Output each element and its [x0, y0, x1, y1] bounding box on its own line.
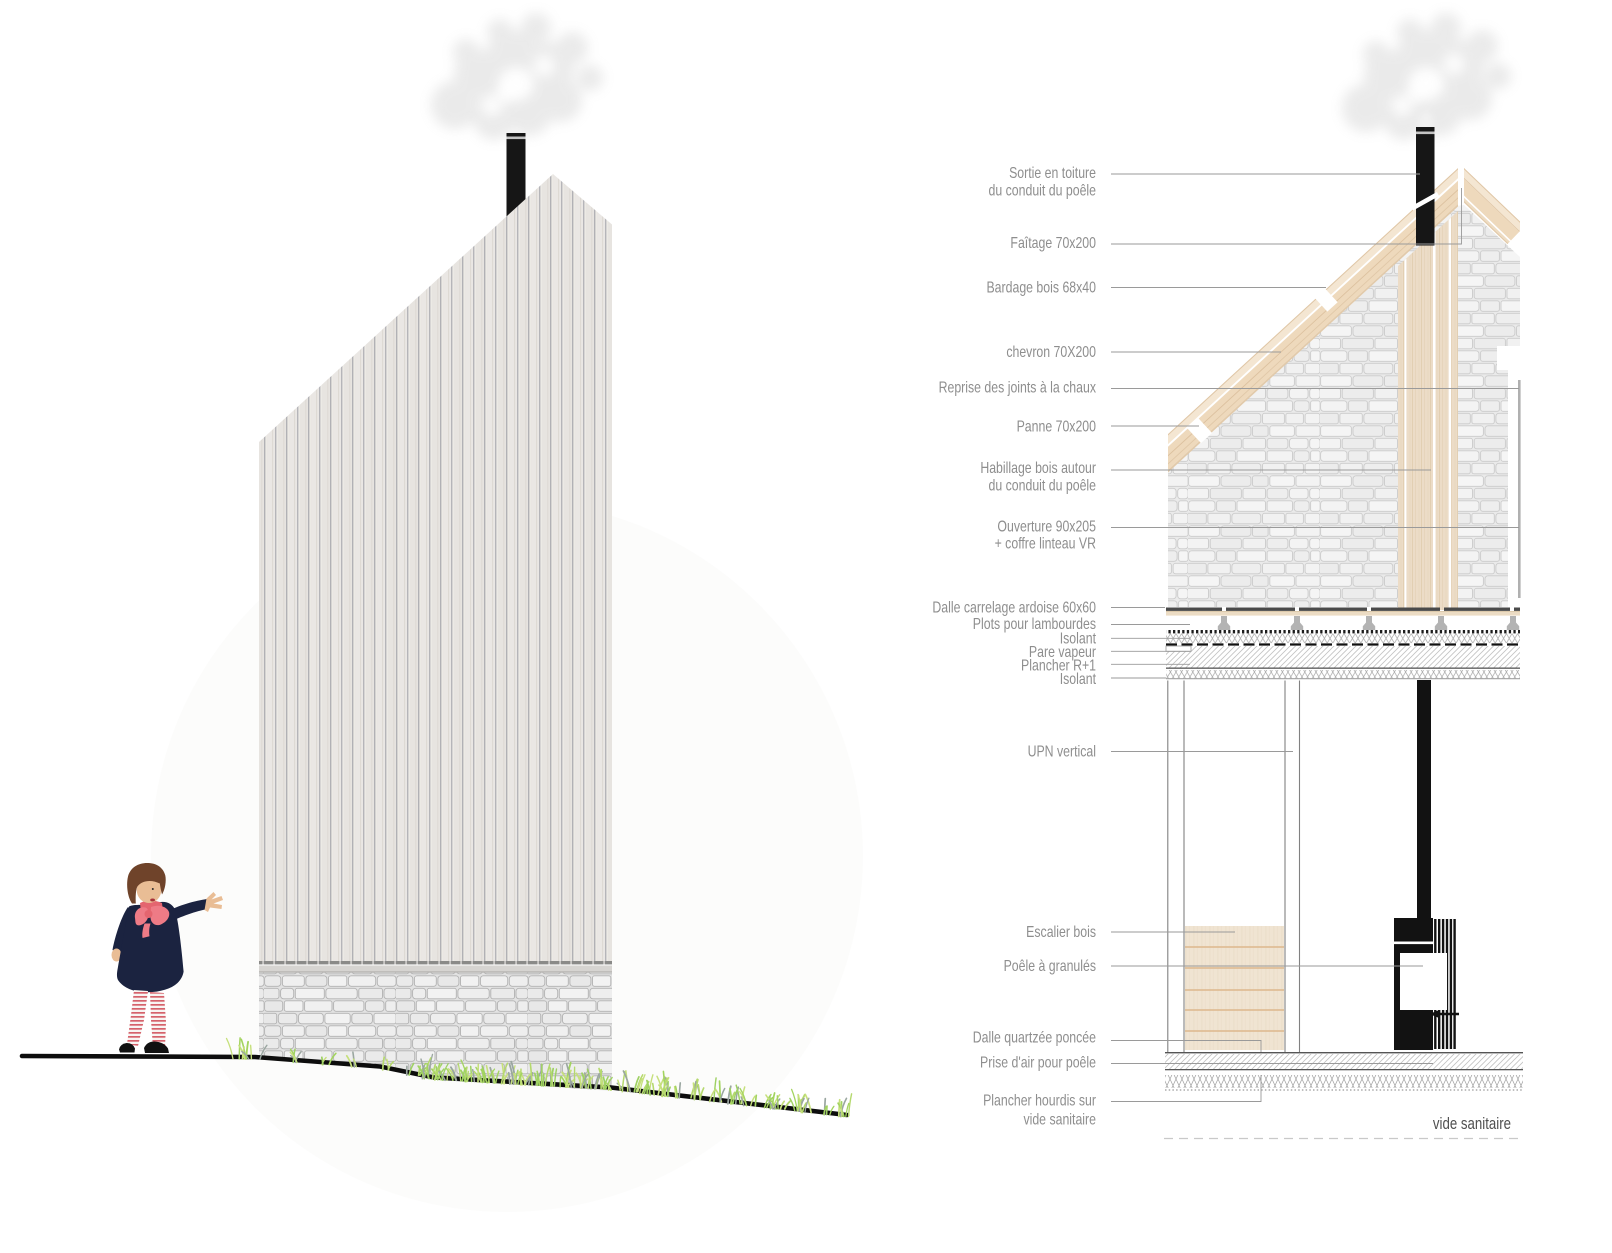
svg-text:du conduit du poêle: du conduit du poêle	[989, 477, 1097, 495]
svg-text:Reprise des joints à la chaux: Reprise des joints à la chaux	[939, 379, 1096, 397]
svg-text:Panne 70x200: Panne 70x200	[1017, 418, 1097, 436]
svg-text:Habillage bois autour: Habillage bois autour	[980, 460, 1096, 478]
svg-text:Escalier bois: Escalier bois	[1026, 924, 1096, 942]
svg-text:UPN vertical: UPN vertical	[1028, 743, 1096, 761]
svg-text:Sortie en toiture: Sortie en toiture	[1009, 165, 1096, 183]
svg-text:vide sanitaire: vide sanitaire	[1023, 1111, 1096, 1129]
svg-text:Faîtage 70x200: Faîtage 70x200	[1010, 235, 1096, 253]
svg-text:vide sanitaire: vide sanitaire	[1433, 1115, 1511, 1134]
svg-text:+ coffre linteau VR: + coffre linteau VR	[995, 535, 1096, 553]
svg-text:Bardage bois 68x40: Bardage bois 68x40	[986, 279, 1096, 297]
svg-text:Poêle à granulés: Poêle à granulés	[1004, 958, 1096, 976]
svg-text:Plancher hourdis sur: Plancher hourdis sur	[983, 1092, 1096, 1110]
svg-text:Isolant: Isolant	[1060, 671, 1096, 689]
svg-text:Dalle carrelage ardoise 60x60: Dalle carrelage ardoise 60x60	[932, 599, 1096, 617]
svg-text:du conduit du poêle: du conduit du poêle	[989, 182, 1097, 200]
svg-text:Ouverture 90x205: Ouverture 90x205	[997, 518, 1096, 536]
svg-text:Prise d'air pour poêle: Prise d'air pour poêle	[980, 1054, 1096, 1072]
svg-text:chevron 70X200: chevron 70X200	[1006, 344, 1096, 362]
svg-text:Dalle quartzée poncée: Dalle quartzée poncée	[973, 1029, 1096, 1047]
